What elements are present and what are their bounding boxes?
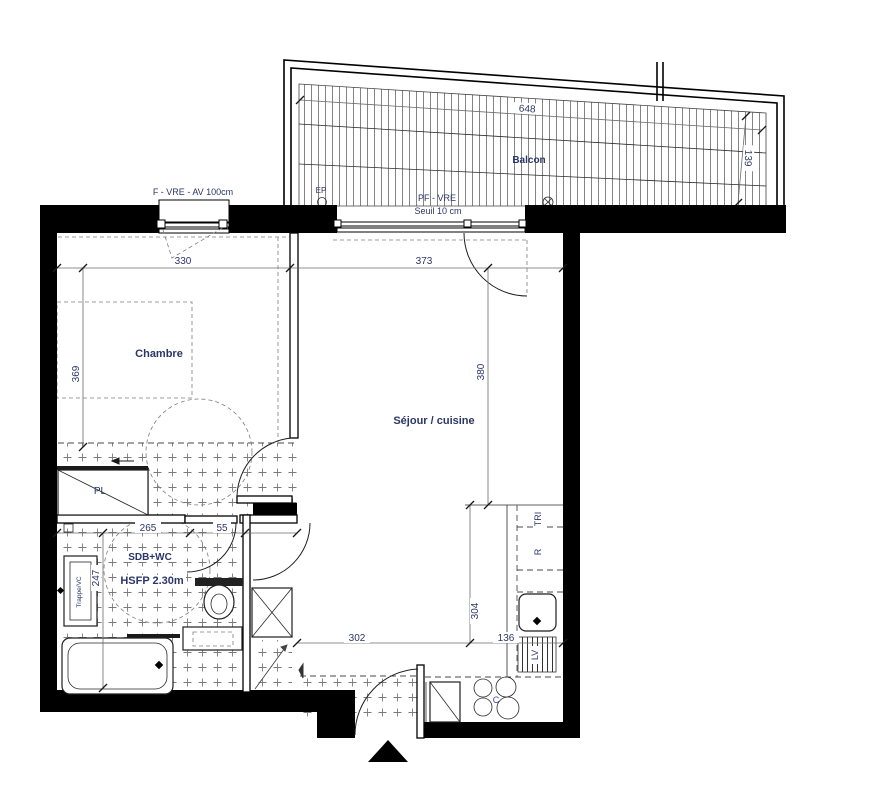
dim-330: 330 xyxy=(175,256,192,267)
balcony-label: Balcon xyxy=(512,155,545,166)
entrance-arrow xyxy=(368,740,408,762)
bedroom-label: Chambre xyxy=(135,348,183,360)
window-glazing xyxy=(159,229,229,233)
closet-sliding-door xyxy=(57,466,148,470)
balcony-area: 648 139 Balcon EP xyxy=(284,60,784,212)
ceiling-height-label: HSFP 2.30m xyxy=(120,575,184,587)
fridge-label: R xyxy=(533,548,543,555)
dim-373: 373 xyxy=(416,256,433,267)
access-hatch-label: Trappe/VC xyxy=(76,576,83,607)
balcony-door-label: PF - VRE xyxy=(418,193,456,203)
shutter-box xyxy=(159,200,229,222)
dim-139: 139 xyxy=(742,150,754,167)
washbasin xyxy=(183,627,242,650)
wall-bottom-right xyxy=(420,722,580,738)
wall-chunk-hall xyxy=(253,503,297,515)
dishwasher-label: LV xyxy=(530,650,540,660)
balcony-deck-hatch xyxy=(299,84,766,206)
window-jamb xyxy=(334,220,341,227)
recycling-label: TRI xyxy=(533,512,543,527)
bedroom-window-label: F - VRE - AV 100cm xyxy=(153,187,233,197)
rain-pipe-label: EP xyxy=(316,186,327,195)
cooktop-label: C xyxy=(493,695,500,705)
window-jamb xyxy=(519,220,526,227)
hall-door-swing xyxy=(253,523,310,580)
dim-265: 265 xyxy=(140,523,157,534)
dim-136: 136 xyxy=(498,633,515,644)
closet: PL xyxy=(57,458,148,515)
bedroom-door-leaf xyxy=(237,496,292,503)
living-kitchen-label: Séjour / cuisine xyxy=(393,415,474,427)
bedroom-window: F - VRE - AV 100cm xyxy=(153,187,233,258)
kitchen-sink xyxy=(519,594,556,631)
window-jamb xyxy=(219,220,227,228)
wall-left xyxy=(40,205,57,712)
dim-304: 304 xyxy=(470,602,481,619)
closet-label: PL xyxy=(94,486,107,497)
window-glazing xyxy=(337,222,525,226)
wall-top-mid xyxy=(228,205,337,233)
floor-plan-page: 648 139 Balcon EP xyxy=(0,0,888,800)
bathroom-label: SDB+WC xyxy=(128,552,172,563)
partition-bedroom-living xyxy=(290,233,298,438)
wall-right xyxy=(563,233,580,738)
window-jamb xyxy=(464,220,471,227)
wall-top-right xyxy=(525,205,786,233)
dim-302: 302 xyxy=(349,633,366,644)
dim-55: 55 xyxy=(216,523,228,534)
dim-247: 247 xyxy=(91,569,102,586)
balcony-door-swing xyxy=(464,233,527,296)
wall-entry-step xyxy=(317,690,355,738)
threshold-label: Seuil 10 cm xyxy=(414,206,461,216)
dim-648: 648 xyxy=(518,103,536,115)
window-glazing xyxy=(337,228,525,232)
kitchen: TRI R LV C xyxy=(425,505,563,722)
wall-top-left xyxy=(40,205,160,233)
dim-369: 369 xyxy=(71,365,82,382)
dim-380: 380 xyxy=(476,363,487,380)
window-jamb xyxy=(157,220,165,228)
entrance-door-leaf xyxy=(417,665,424,738)
partition-bath-east xyxy=(243,515,250,692)
floor-plan-drawing: 648 139 Balcon EP xyxy=(0,0,888,800)
bathroom-door-leaf xyxy=(185,516,237,523)
partition-bath-north-left xyxy=(57,515,185,523)
